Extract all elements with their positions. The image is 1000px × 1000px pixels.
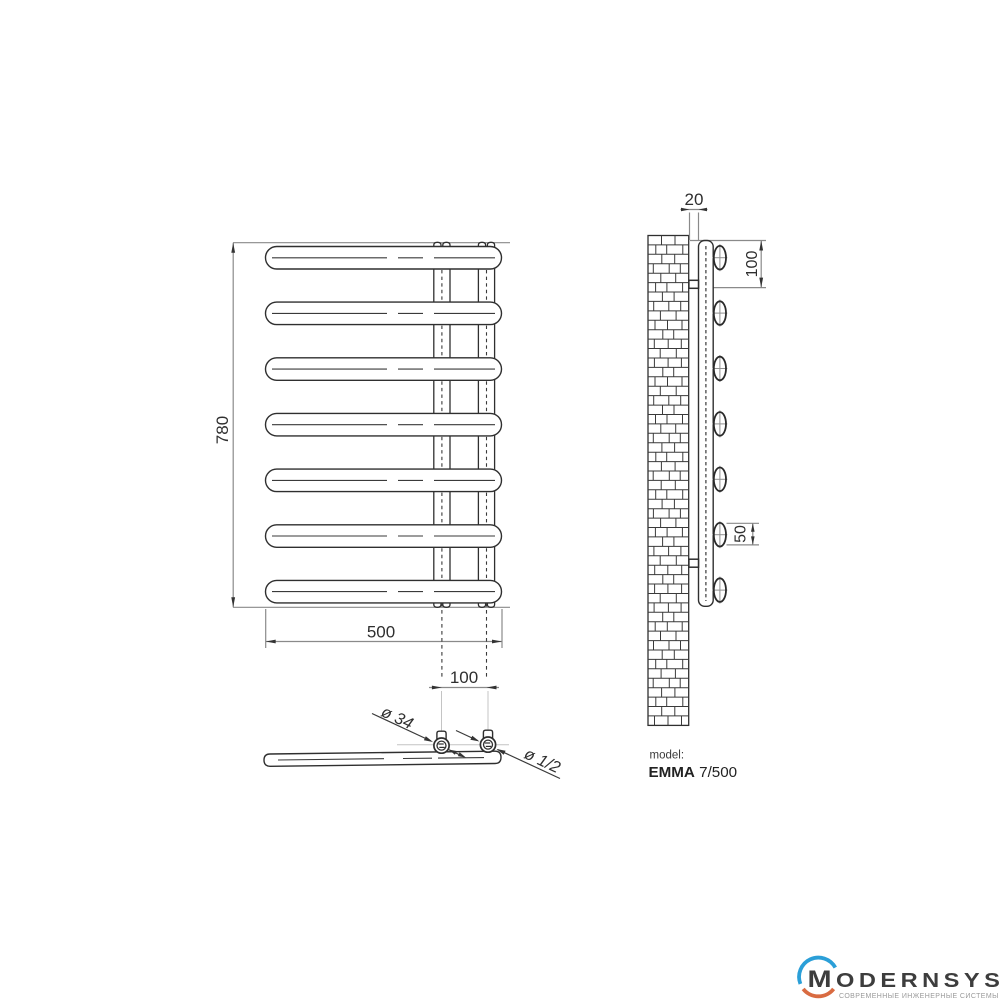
svg-text:100: 100 xyxy=(450,668,478,687)
svg-text:MODERNSYS: MODERNSYS xyxy=(808,965,1000,992)
svg-text:50: 50 xyxy=(732,525,749,543)
svg-text:100: 100 xyxy=(744,251,761,278)
svg-text:ø 1/2: ø 1/2 xyxy=(521,745,563,777)
svg-text:ø 34: ø 34 xyxy=(378,703,416,733)
svg-text:СОВРЕМЕННЫЕ ИНЖЕНЕРНЫЕ СИСТЕ: СОВРЕМЕННЫЕ ИНЖЕНЕРНЫЕ СИСТЕМЫ xyxy=(839,993,999,1000)
svg-text:20: 20 xyxy=(685,190,704,209)
svg-text:EMMA 7/500: EMMA 7/500 xyxy=(649,764,738,781)
svg-text:780: 780 xyxy=(213,416,232,444)
svg-text:500: 500 xyxy=(367,623,395,642)
svg-text:model:: model: xyxy=(650,750,685,762)
